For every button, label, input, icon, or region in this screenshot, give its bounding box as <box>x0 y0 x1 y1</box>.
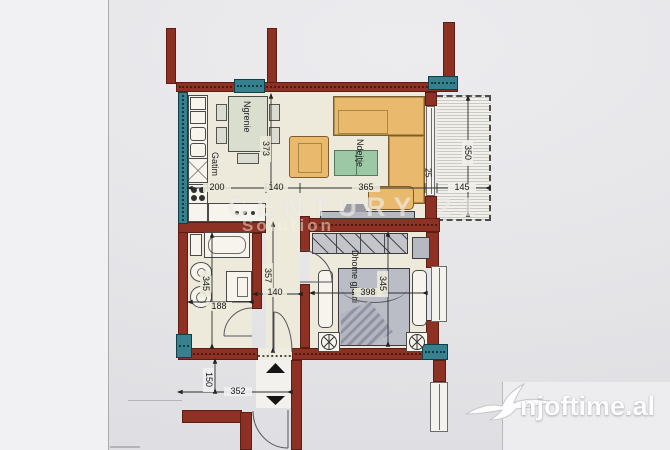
room-label-bedroom: Dhome gjumi <box>350 250 359 322</box>
dim-label-188: 188 <box>206 302 232 311</box>
bathtub-inner <box>208 236 246 254</box>
wall-right-living-upper <box>425 92 437 106</box>
wall-lower-vertical <box>291 360 302 450</box>
room-label-dining: Ngrenie <box>242 101 251 157</box>
paper-mark <box>110 446 140 448</box>
lamp-icon <box>408 333 426 351</box>
dim-label-365: 365 <box>352 183 380 192</box>
dim-label-373: 373 <box>260 136 271 162</box>
bed <box>338 268 410 346</box>
dim-label-345-bed: 345 <box>377 271 388 297</box>
dim-label-140-lower: 140 <box>263 288 287 297</box>
dim-label-145: 145 <box>448 183 476 192</box>
bedroom-dresser-left <box>318 270 333 328</box>
kitchen-sink-bowl <box>190 127 206 141</box>
wall-stub-bottom-right <box>433 360 446 382</box>
column-top-1 <box>234 79 265 93</box>
washing-machine-door <box>237 277 248 297</box>
dining-chair <box>269 104 280 121</box>
floorplan-photo: Ngrenie Gatim Ndejtje Dhome gjumi 373 20… <box>0 0 670 450</box>
bathroom-boiler <box>190 234 202 256</box>
wall-bathroom-hall <box>252 233 262 309</box>
wall-stub-top-left <box>166 28 176 84</box>
lamp-icon <box>320 333 338 351</box>
room-label-living: Ndejtje <box>355 139 364 185</box>
dim-label-352: 352 <box>224 387 252 396</box>
dining-chair <box>216 104 227 121</box>
wall-left-bathroom <box>178 224 188 350</box>
door-arc-stairwell <box>253 410 288 448</box>
paper-mark <box>128 400 182 401</box>
column-bottom-left <box>176 334 192 358</box>
stove-burner <box>191 187 197 193</box>
washing-machine <box>226 271 252 302</box>
column-top-2 <box>428 76 458 90</box>
wall-lower-left <box>240 412 252 450</box>
dim-label-200: 200 <box>203 183 231 192</box>
wall-hall-bedroom-lower <box>300 284 310 348</box>
dim-label-350: 350 <box>462 140 473 166</box>
wall-top-exterior <box>176 82 458 92</box>
kitchen-cabinet <box>190 97 206 110</box>
wall-stub-top-right <box>443 22 455 82</box>
kitchen-fridge <box>188 158 208 183</box>
floor-entry-threshold <box>258 348 292 360</box>
watermark-agency-sub: Solution <box>242 216 334 236</box>
kitchen-sink-bowl <box>190 143 206 157</box>
wardrobe <box>312 233 408 254</box>
kitchen-cabinet <box>190 111 206 124</box>
dim-label-357: 357 <box>262 263 273 289</box>
sofa-seat-line <box>338 110 388 134</box>
bed-blanket <box>341 301 393 345</box>
window-bedroom <box>431 266 447 322</box>
dining-chair <box>216 127 227 144</box>
dim-label-140: 140 <box>264 183 288 192</box>
floor-landing <box>256 360 292 408</box>
window-stairwell <box>430 382 448 432</box>
dim-label-150: 150 <box>203 368 214 392</box>
paper-left-margin <box>0 0 109 450</box>
stove-burner <box>191 195 197 201</box>
armchair <box>289 136 329 178</box>
armchair-seat <box>298 143 322 173</box>
wall-lower-horizontal <box>182 410 242 423</box>
watermark-brand: njoftime.al <box>520 391 655 422</box>
dim-label-345-bath: 345 <box>200 271 211 297</box>
bedroom-cabinet <box>412 237 430 259</box>
dim-label-25: 25 <box>424 168 433 190</box>
column-left-kitchen <box>178 92 188 224</box>
wall-stub-top-mid <box>267 28 277 84</box>
stove-burner <box>199 195 205 201</box>
bedroom-bench-right <box>412 270 427 326</box>
